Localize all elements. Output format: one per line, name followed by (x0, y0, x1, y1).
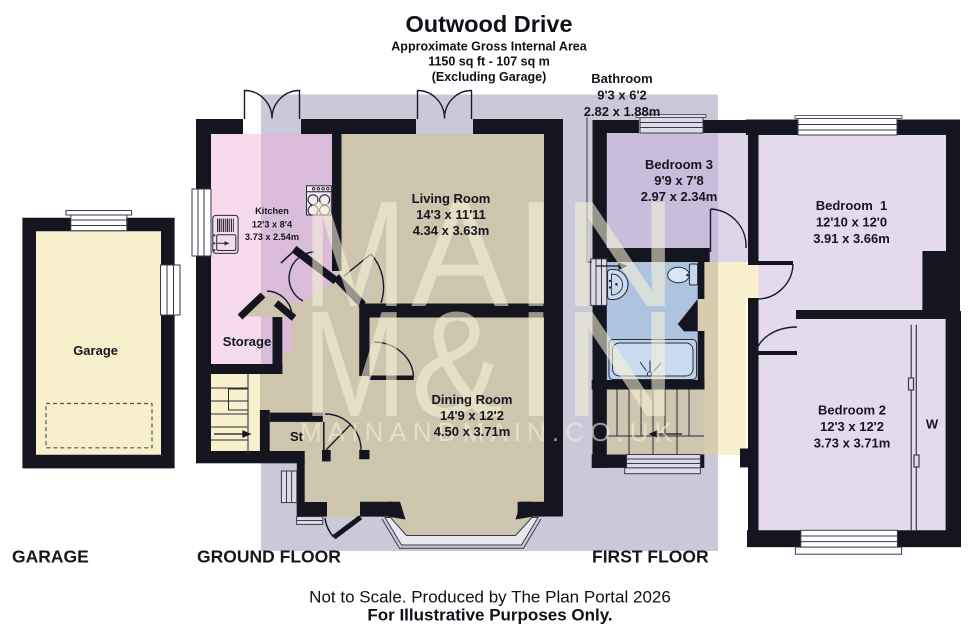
svg-text:Bedroom 3: Bedroom 3 (645, 157, 713, 172)
svg-text:Bedroom 2: Bedroom 2 (818, 403, 886, 418)
svg-text:GARAGE: GARAGE (12, 547, 89, 567)
svg-text:St: St (290, 429, 304, 444)
svg-text:14'9 x 12'2: 14'9 x 12'2 (440, 408, 504, 423)
svg-text:For Illustrative Purposes Only: For Illustrative Purposes Only. (367, 606, 612, 625)
svg-text:Not to Scale. Produced by The: Not to Scale. Produced by The Plan Porta… (309, 588, 671, 607)
svg-text:FIRST FLOOR: FIRST FLOOR (592, 547, 709, 567)
svg-text:Outwood Drive: Outwood Drive (405, 11, 572, 37)
svg-text:GROUND FLOOR: GROUND FLOOR (197, 547, 341, 567)
svg-text:3.73 x 3.71m: 3.73 x 3.71m (814, 436, 891, 451)
svg-text:9'9 x 7'8: 9'9 x 7'8 (654, 173, 704, 188)
svg-text:9'3 x 6'2: 9'3 x 6'2 (597, 88, 647, 103)
svg-text:12'10 x 12'0: 12'10 x 12'0 (816, 215, 887, 230)
svg-text:4.50 x 3.71m: 4.50 x 3.71m (434, 424, 511, 439)
svg-text:Garage: Garage (73, 343, 118, 358)
svg-text:12'3 x 8'4: 12'3 x 8'4 (252, 220, 293, 230)
svg-text:Approximate Gross Internal Are: Approximate Gross Internal Area (391, 40, 587, 54)
svg-text:Bathroom: Bathroom (591, 71, 652, 86)
svg-text:3.73 x 2.54m: 3.73 x 2.54m (245, 232, 299, 242)
svg-text:1150 sq ft - 107 sq m: 1150 sq ft - 107 sq m (428, 55, 550, 69)
svg-text:W: W (926, 417, 939, 432)
svg-text:Bedroom 1: Bedroom 1 (816, 198, 888, 213)
svg-text:2.97 x 2.34m: 2.97 x 2.34m (641, 189, 718, 204)
svg-text:14'3 x 11'11: 14'3 x 11'11 (416, 207, 486, 222)
svg-text:4.34 x 3.63m: 4.34 x 3.63m (413, 223, 490, 238)
svg-text:Dining Room: Dining Room (432, 392, 513, 407)
svg-text:3.91 x 3.66m: 3.91 x 3.66m (813, 231, 890, 246)
svg-text:(Excluding Garage): (Excluding Garage) (432, 70, 547, 84)
svg-text:2.82 x 1.88m: 2.82 x 1.88m (584, 104, 661, 119)
svg-text:12'3 x 12'2: 12'3 x 12'2 (820, 419, 884, 434)
svg-text:Living Room: Living Room (412, 191, 491, 206)
svg-text:Kitchen: Kitchen (255, 206, 289, 216)
svg-text:Storage: Storage (223, 334, 271, 349)
